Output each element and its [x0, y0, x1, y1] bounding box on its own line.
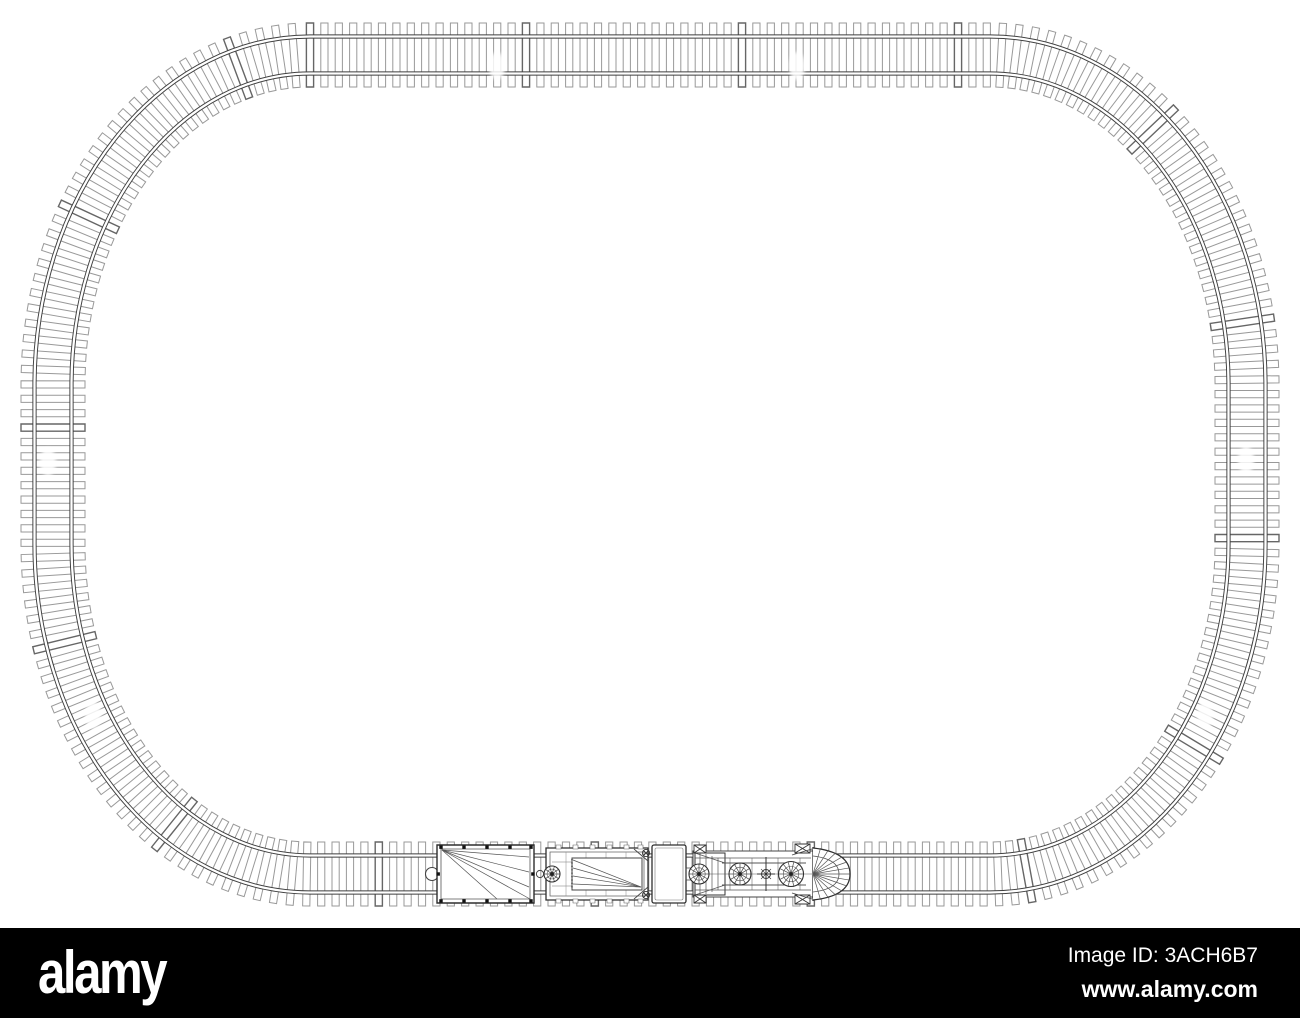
- tender: [652, 845, 691, 903]
- track-tie: [882, 23, 889, 87]
- inner-rail: [72, 74, 1229, 856]
- track-tie: [350, 23, 357, 87]
- track-tie: [1005, 841, 1019, 905]
- watermark-sparkle: [789, 52, 805, 80]
- track-tie: [894, 842, 901, 906]
- track-tie: [21, 482, 85, 489]
- track-tie: [361, 842, 368, 906]
- watermark-sparkle: [489, 52, 505, 80]
- track-tie: [609, 23, 616, 87]
- track-tie: [21, 365, 85, 374]
- track-tie: [404, 842, 411, 906]
- track-tie: [1008, 24, 1023, 88]
- flat-wagon: [546, 845, 650, 903]
- track-tie: [364, 23, 371, 87]
- track-tie: [1017, 839, 1036, 903]
- track-tie: [1210, 314, 1274, 330]
- track-tie: [479, 23, 486, 87]
- track-tie: [980, 842, 987, 906]
- track-tie: [1212, 588, 1276, 603]
- track-tie: [724, 23, 731, 87]
- track-tie: [1215, 477, 1279, 484]
- inner-rail-core: [72, 74, 1229, 856]
- track-tie: [1215, 548, 1279, 557]
- track-tie: [566, 23, 573, 87]
- track-tie: [393, 23, 400, 87]
- track-tie: [407, 23, 414, 87]
- track-tie: [1208, 299, 1272, 318]
- track-tie: [681, 23, 688, 87]
- track-tie: [537, 23, 544, 87]
- track-tie: [922, 842, 929, 906]
- track-tie: [951, 842, 958, 906]
- track-tie: [21, 496, 85, 503]
- stock-photo-page: alamy Image ID: 3ACH6B7 www.alamy.com: [0, 0, 1300, 1018]
- track-tie: [1213, 575, 1277, 588]
- track-tie: [1215, 419, 1279, 426]
- credit-bar: alamy Image ID: 3ACH6B7 www.alamy.com: [0, 928, 1300, 1018]
- track-tie: [288, 23, 300, 87]
- track-tie: [465, 23, 472, 87]
- track-tie: [966, 842, 973, 906]
- track-tie: [839, 23, 846, 87]
- track-tie: [1215, 491, 1279, 498]
- track-tie: [993, 842, 1003, 906]
- watermark-sparkle: [40, 448, 56, 476]
- track-tie: [638, 23, 645, 87]
- track-tie: [594, 23, 601, 87]
- image-meta: Image ID: 3ACH6B7 www.alamy.com: [1068, 940, 1258, 1006]
- website-text: www.alamy.com: [1068, 972, 1258, 1007]
- track-tie: [666, 23, 673, 87]
- track-tie: [21, 381, 85, 388]
- track-tie: [1210, 601, 1274, 618]
- track-tie: [23, 334, 87, 348]
- track-tie: [767, 23, 774, 87]
- track-tie: [897, 23, 904, 87]
- track-tie: [21, 395, 85, 402]
- track-tie: [346, 842, 353, 906]
- track-tie: [335, 23, 342, 87]
- watermark-sparkle: [85, 701, 101, 729]
- track-tie: [21, 539, 85, 546]
- track-tie: [969, 23, 976, 87]
- track-tie: [436, 23, 443, 87]
- track-tie: [450, 23, 457, 87]
- spoked-wheel: [544, 866, 560, 882]
- track-tie: [1215, 405, 1279, 412]
- track-tie: [418, 842, 425, 906]
- track-tie: [23, 579, 87, 592]
- track-tie: [937, 842, 944, 906]
- track-tie: [1214, 562, 1278, 573]
- track-rails: [35, 37, 1266, 893]
- track-tie: [21, 525, 85, 532]
- track-tie: [390, 842, 397, 906]
- train: [426, 844, 851, 904]
- track-tie: [1213, 345, 1277, 357]
- track-tie: [321, 23, 328, 87]
- track-tie: [738, 23, 745, 87]
- track-tie: [286, 841, 299, 905]
- track-tie: [21, 438, 85, 445]
- track-tie: [983, 23, 990, 87]
- track-tie: [996, 23, 1007, 87]
- track-tie: [318, 842, 325, 906]
- track-tie: [25, 592, 89, 608]
- track-tie: [580, 23, 587, 87]
- track-tie: [375, 842, 382, 906]
- track-centerline: [53, 55, 1247, 874]
- track-tie: [522, 23, 529, 87]
- track-tie: [825, 23, 832, 87]
- track-tie: [695, 23, 702, 87]
- track-tie: [1215, 434, 1279, 441]
- track-tie: [652, 23, 659, 87]
- track-tie: [954, 23, 961, 87]
- track-tie: [22, 350, 86, 362]
- track-tie: [810, 23, 817, 87]
- outer-rail-core: [35, 37, 1266, 893]
- track-tie: [940, 23, 947, 87]
- track-tie: [1215, 520, 1279, 527]
- track-tie: [378, 23, 385, 87]
- alamy-logo: alamy: [38, 928, 165, 1018]
- outer-rail: [35, 37, 1266, 893]
- track-tie: [1215, 506, 1279, 513]
- car-coupler: [536, 870, 543, 877]
- track-tie: [753, 23, 760, 87]
- boxcar: [426, 845, 535, 903]
- track-tie: [22, 566, 86, 577]
- track-tie: [21, 410, 85, 417]
- track-tie: [1207, 614, 1271, 633]
- track-tie: [1215, 376, 1279, 384]
- image-id-text: Image ID: 3ACH6B7: [1068, 940, 1258, 972]
- track-tie: [868, 23, 875, 87]
- track-tie: [303, 842, 311, 906]
- track-tie: [551, 23, 558, 87]
- spoked-wheel: [729, 863, 751, 885]
- track-tie: [926, 23, 933, 87]
- track-tie: [21, 553, 85, 562]
- track-ties: [21, 23, 1279, 906]
- track-tie: [1215, 535, 1279, 542]
- track-tie: [332, 842, 339, 906]
- track-tie: [306, 23, 313, 87]
- watermark-sparkle: [1197, 701, 1213, 729]
- track-tie: [710, 23, 717, 87]
- track-tie: [854, 23, 861, 87]
- track-tie: [508, 23, 515, 87]
- watermark-sparkle: [1238, 446, 1254, 474]
- track-tie: [911, 23, 918, 87]
- track-tie: [623, 23, 630, 87]
- watermark-sparkles: [40, 52, 1254, 729]
- track-tie: [850, 842, 857, 906]
- track-tie: [1215, 391, 1279, 398]
- track-tie: [21, 424, 85, 431]
- track-tie: [1214, 360, 1278, 370]
- spoked-wheel: [779, 862, 804, 887]
- wireframe-train-track-drawing: [0, 0, 1300, 928]
- track-tie: [21, 510, 85, 517]
- track-tie: [782, 23, 789, 87]
- track-tie: [865, 842, 872, 906]
- track-tie: [1212, 329, 1276, 343]
- track-tie: [25, 319, 89, 335]
- spoked-wheel: [689, 864, 709, 884]
- track-tie: [879, 842, 886, 906]
- track-tie: [422, 23, 429, 87]
- track-tie: [908, 842, 915, 906]
